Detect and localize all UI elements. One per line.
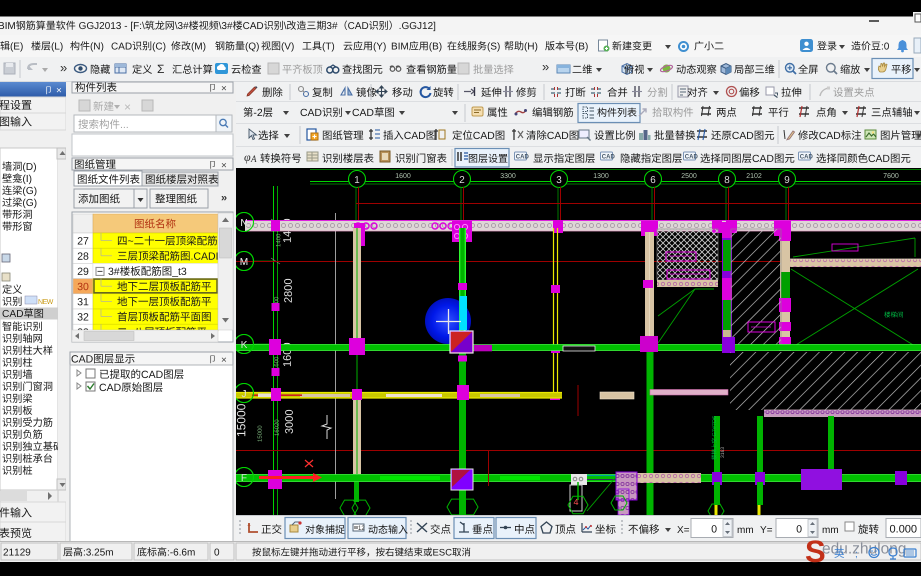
svg-text:CAD: CAD	[800, 155, 814, 161]
svg-text:CAD: CAD	[602, 155, 616, 161]
svg-text:CAD: CAD	[516, 155, 530, 161]
svg-text:φ: φ	[244, 150, 251, 164]
svg-text:12: 12	[358, 526, 365, 532]
svg-text:A: A	[250, 154, 257, 164]
svg-text:CAD: CAD	[685, 155, 699, 161]
